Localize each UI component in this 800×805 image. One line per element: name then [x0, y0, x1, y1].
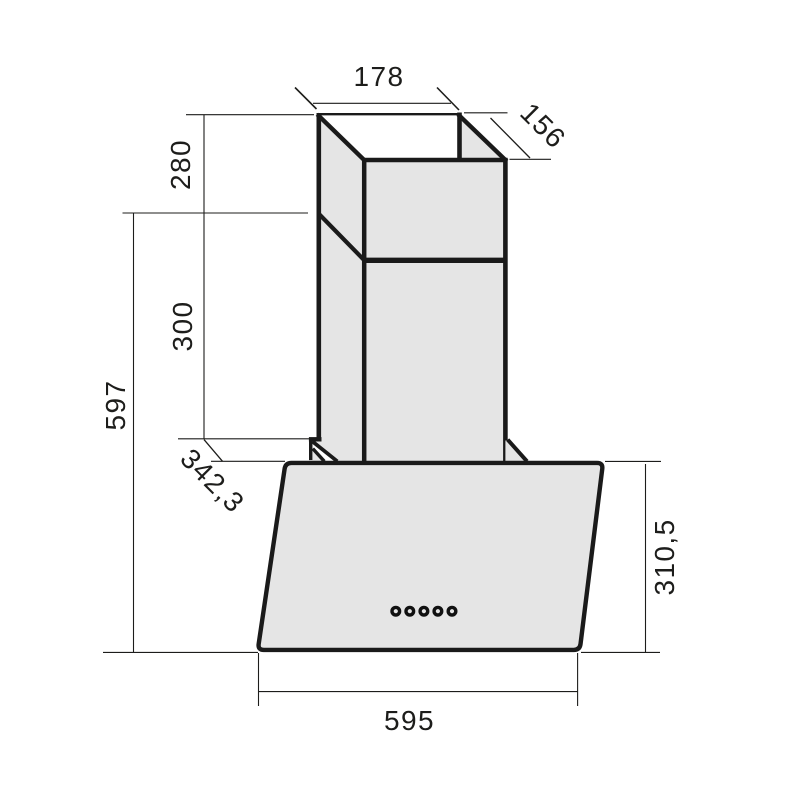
svg-text:310,5: 310,5 [649, 518, 680, 595]
svg-text:300: 300 [167, 301, 198, 352]
svg-text:178: 178 [354, 61, 405, 92]
svg-text:280: 280 [165, 139, 196, 190]
svg-text:595: 595 [384, 705, 435, 736]
svg-text:597: 597 [100, 380, 131, 431]
